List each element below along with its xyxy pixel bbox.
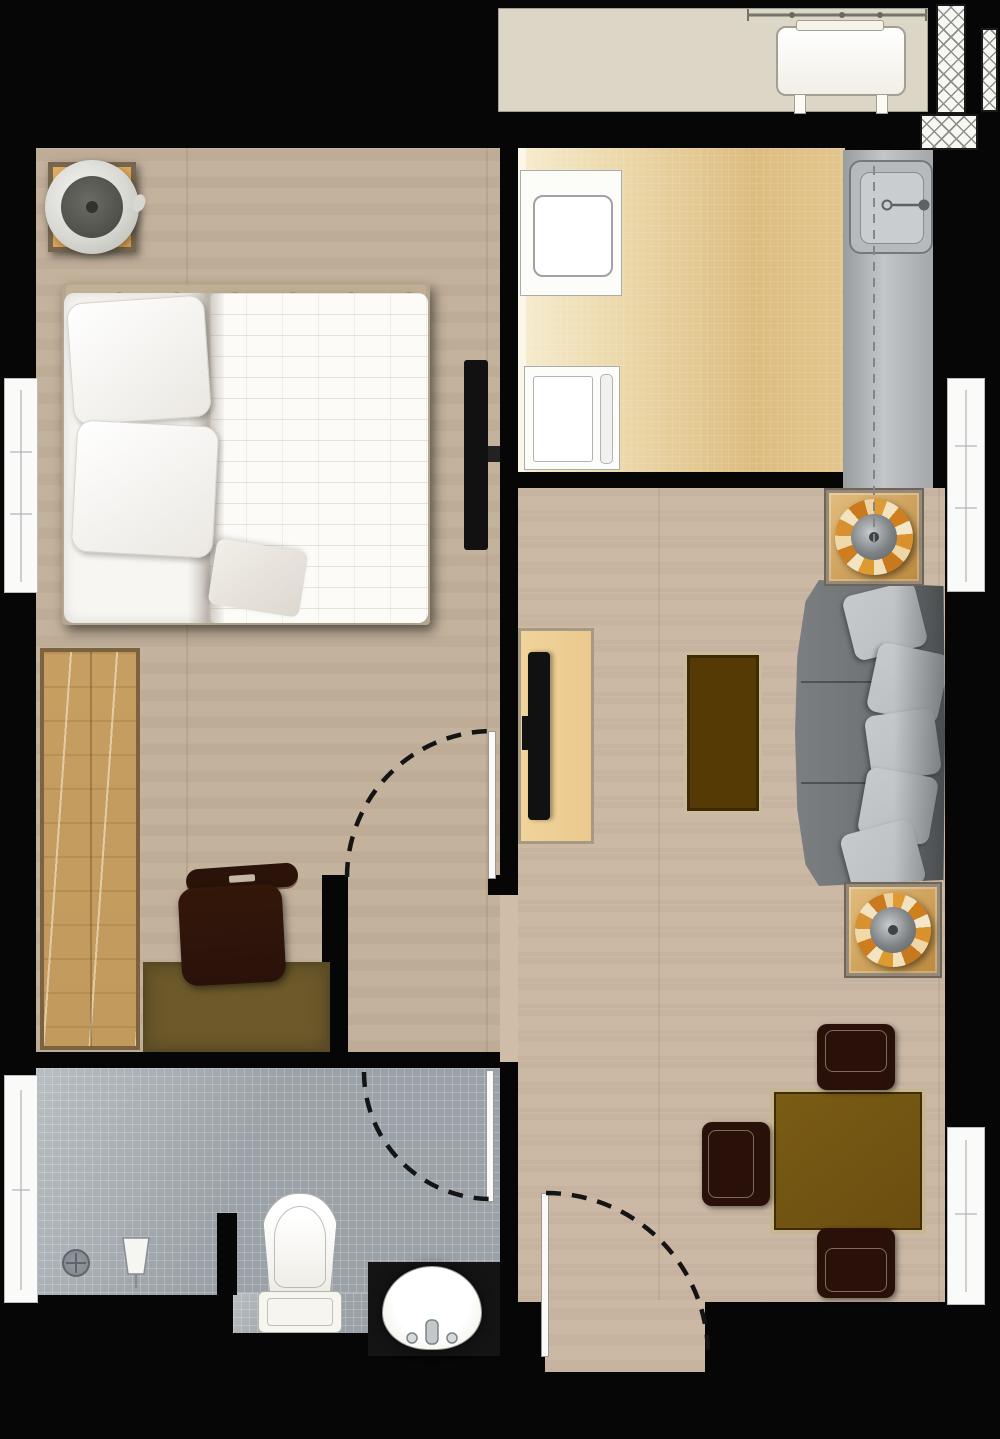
- double-bed: [62, 283, 430, 625]
- toilet-bowl: [261, 1193, 339, 1297]
- wardrobe: [40, 648, 140, 1050]
- dining-chair: [817, 1228, 895, 1298]
- coffee-table: [684, 652, 762, 814]
- spiral-plant: [835, 499, 913, 575]
- toilet: [258, 1193, 342, 1333]
- desk-chair-seat: [178, 883, 287, 986]
- dining-chair: [702, 1122, 770, 1206]
- appliance-door: [533, 376, 593, 462]
- wall-section-hatch: [936, 4, 966, 114]
- plant-pot: [846, 884, 940, 976]
- blanket-corner: [207, 538, 308, 618]
- sofa-cushion: [866, 641, 951, 724]
- sink-basin: [860, 172, 924, 244]
- fridge: [520, 170, 622, 296]
- plant-core: [851, 514, 897, 560]
- pillow: [66, 294, 212, 425]
- wall-stub: [217, 1213, 237, 1295]
- bedroom-window: [4, 378, 38, 593]
- plant-core: [870, 907, 916, 953]
- floor-plan-canvas: [0, 0, 1000, 1439]
- toilet-tank: [258, 1291, 342, 1333]
- wall-section-hatch: [920, 114, 978, 150]
- dining-table: [770, 1088, 926, 1234]
- fridge-top: [533, 195, 613, 277]
- spiral-plant: [855, 893, 931, 967]
- ac-foot: [794, 94, 806, 114]
- hallway-floor: [500, 895, 518, 1062]
- living-room-window: [947, 378, 985, 592]
- bathroom-basin: [382, 1266, 482, 1350]
- kitchen-sink: [849, 160, 933, 254]
- table-lamp: [45, 160, 139, 254]
- dining-chair: [817, 1024, 895, 1090]
- bathroom-door-leaf: [486, 1070, 494, 1202]
- bedroom-door-leaf: [488, 731, 496, 879]
- floor-drain: [62, 1249, 90, 1277]
- living-room-tv: [528, 652, 550, 820]
- sofa: [795, 580, 945, 886]
- kitchen-appliance: [524, 366, 620, 470]
- appliance-handle: [600, 374, 613, 464]
- pillow: [71, 419, 220, 558]
- lamp-finial: [86, 201, 98, 213]
- ac-foot: [876, 94, 888, 114]
- entry-floor: [545, 1300, 705, 1372]
- ac-condenser-unit: [776, 26, 906, 96]
- plant-pot: [826, 490, 922, 584]
- entry-door-leaf: [541, 1193, 549, 1357]
- shower-glass-panel: [4, 1075, 38, 1303]
- bedroom-wall-tv: [464, 360, 488, 550]
- wall-section-hatch: [981, 28, 998, 112]
- dining-window: [947, 1127, 985, 1305]
